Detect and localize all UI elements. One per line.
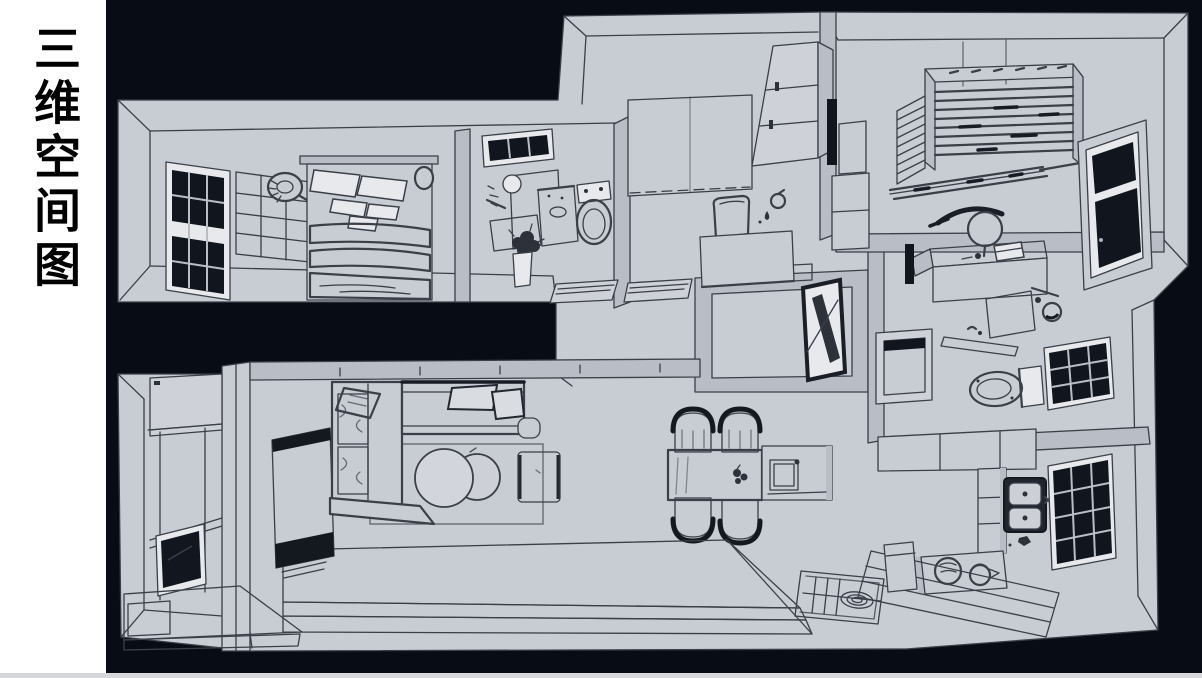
sofa-pillow: [492, 389, 524, 419]
balcony-glass-pane: [156, 524, 206, 596]
screenshot-root: 三维空间图: [0, 0, 1202, 678]
sofa-pillow: [448, 385, 497, 410]
middle-room: [803, 280, 845, 380]
kitchen-sink: [1004, 478, 1051, 532]
door-gap: [827, 99, 837, 165]
study-door-window: [1078, 120, 1152, 290]
vanity-sink: [538, 186, 578, 246]
round-coffee-tables: [415, 448, 500, 507]
wall-inset-niche: [876, 329, 932, 404]
bedside-stool: [415, 167, 433, 189]
open-shelf: [978, 468, 1006, 555]
tall-cabinet: [839, 121, 866, 174]
bathroom2-window: [1044, 337, 1114, 410]
page-title: 三维空间图: [29, 24, 76, 294]
stove-counter: [915, 551, 1007, 595]
hall-wardrobe: [628, 95, 752, 196]
kitchen-window: [1048, 454, 1116, 570]
sideboard: [762, 446, 832, 500]
bedroom-window: [166, 162, 230, 300]
floorplan-canvas: [0, 0, 1202, 678]
door-gap: [905, 244, 914, 284]
entry-step: [884, 542, 917, 592]
bottom-edge-strip: [0, 673, 1202, 678]
upper-cabinets: [878, 429, 1036, 471]
title-panel: 三维空间图: [0, 0, 106, 673]
